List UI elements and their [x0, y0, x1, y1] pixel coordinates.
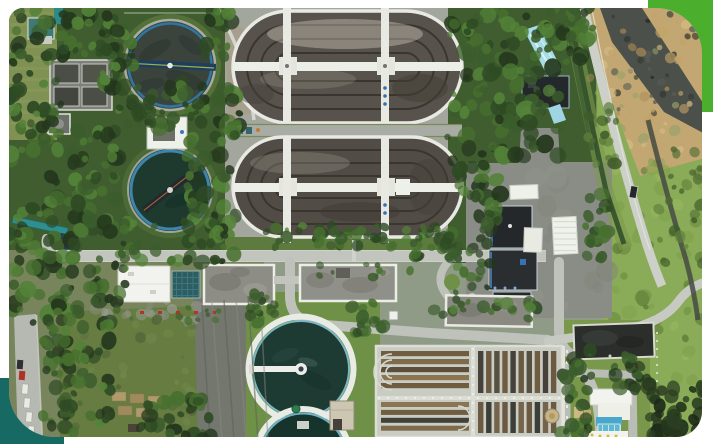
basin-lanes-br: [535, 402, 540, 433]
garden-bed: [118, 406, 132, 415]
trees: [217, 136, 226, 146]
equipment-dot: [383, 102, 387, 106]
basin-lanes-br: [502, 402, 507, 433]
roof-patch: [230, 267, 250, 277]
walkway-pad: [396, 179, 410, 195]
inter-ditch-strip: [233, 124, 462, 137]
panel-grid: [198, 272, 199, 297]
water-sheen: [250, 152, 350, 174]
basin-lanes-br: [494, 402, 499, 433]
basin-lanes-bl: [381, 410, 469, 415]
basin-lanes-tr: [551, 351, 556, 393]
mow-stripes: [10, 67, 56, 70]
panel-grid: [173, 295, 199, 296]
aerial-scene: [9, 8, 702, 437]
basin-lanes-tl: [381, 351, 469, 356]
canopy-ribs: [554, 233, 576, 234]
clarifier-a-hub: [167, 63, 173, 69]
canopy-ribs: [554, 250, 576, 251]
clarifier-c-bridge: [249, 366, 301, 372]
clarifier-c-hub-center: [298, 366, 303, 371]
basin-lanes-tr: [543, 351, 548, 393]
basin-lanes-tr: [478, 351, 483, 393]
green-dome: [292, 405, 300, 413]
water-sheen: [260, 69, 356, 89]
roof-patch: [582, 330, 618, 346]
basin-lanes-tr: [527, 351, 532, 393]
basin-lanes-tl: [381, 367, 469, 372]
basin-lanes-br: [486, 402, 491, 433]
basin-lanes-tr: [535, 351, 540, 393]
clarifier-b-hub: [167, 187, 173, 193]
white-canopy-small: [524, 228, 543, 253]
equipment-dot: [180, 130, 184, 134]
red-bench: [140, 311, 144, 314]
parked-car: [28, 426, 35, 436]
equipment-dot: [383, 211, 387, 215]
parked-car: [17, 360, 24, 369]
basin-lanes-tr: [486, 351, 491, 393]
walkway-vertical: [283, 137, 291, 243]
roof-dot: [508, 224, 512, 228]
basin-lanes-br: [510, 402, 515, 433]
equipment-dot: [256, 128, 260, 132]
dark-building-2: [489, 250, 537, 290]
basin-lanes-bl: [381, 426, 469, 431]
canopy-ribs: [554, 244, 576, 245]
basin-lanes-tr: [510, 351, 515, 393]
equipment-dot: [383, 64, 387, 68]
car-on-road: [629, 185, 638, 198]
connector-path: [274, 276, 300, 284]
walkway-connector: [297, 421, 309, 429]
roof-dot: [494, 287, 497, 290]
roof-dark-spot: [336, 268, 350, 278]
walkway-horizontal: [233, 62, 462, 71]
white-hut: [389, 311, 398, 320]
canopy-ribs: [554, 227, 576, 228]
equipment-dot: [285, 64, 289, 68]
roof-dot: [514, 287, 517, 290]
basin-lanes-tl: [381, 375, 469, 380]
pump-building-door: [333, 419, 342, 430]
panel-grid: [182, 272, 183, 297]
panel-grid: [173, 289, 199, 290]
lamp-dot: [591, 434, 594, 437]
equipment-blue: [520, 259, 526, 265]
parked-car: [26, 412, 33, 422]
roof-dot: [609, 355, 612, 358]
road-cross: [430, 333, 548, 340]
parked-car: [22, 384, 29, 394]
aerial-photo-wastewater-plant: [9, 8, 702, 437]
panel-grid: [176, 272, 177, 297]
red-bench: [194, 311, 198, 314]
red-bench: [158, 311, 162, 314]
canopy-ribs: [554, 221, 576, 222]
tan-pad-center: [549, 413, 555, 419]
basin-lanes-tr: [519, 351, 524, 393]
canopy-ribs: [554, 238, 576, 239]
panel-grid: [193, 272, 194, 297]
page: [0, 0, 713, 444]
equipment-teal: [246, 127, 252, 134]
basin-lanes-br: [527, 402, 532, 433]
garden-bed: [130, 394, 144, 403]
basin-lanes-br: [519, 402, 524, 433]
parked-car: [19, 371, 26, 380]
walkway-horizontal: [233, 183, 462, 192]
basin-lanes-tl: [381, 359, 469, 364]
basin-lanes-bl: [381, 402, 469, 407]
equipment-dot: [383, 94, 387, 98]
roof-dot: [504, 287, 507, 290]
equipment-dot: [383, 203, 387, 207]
traffic-island: [444, 274, 460, 290]
white-tent: [510, 185, 538, 200]
panel-grid: [173, 277, 199, 278]
roof-vent: [128, 272, 134, 276]
water-dark: [392, 74, 448, 102]
panel-grid: [187, 272, 188, 297]
water-dark: [238, 84, 274, 104]
parked-car: [24, 398, 31, 408]
panel-grid: [173, 283, 199, 284]
basin-lanes-bl: [381, 418, 469, 423]
basin-lanes-br: [478, 402, 483, 433]
roof-patch: [616, 336, 644, 348]
basin-lanes-tr: [502, 351, 507, 393]
equipment-dot: [383, 86, 387, 90]
basin-lanes-tl: [381, 383, 469, 388]
roof-vent: [150, 290, 156, 294]
basin-lanes-tr: [494, 351, 499, 393]
